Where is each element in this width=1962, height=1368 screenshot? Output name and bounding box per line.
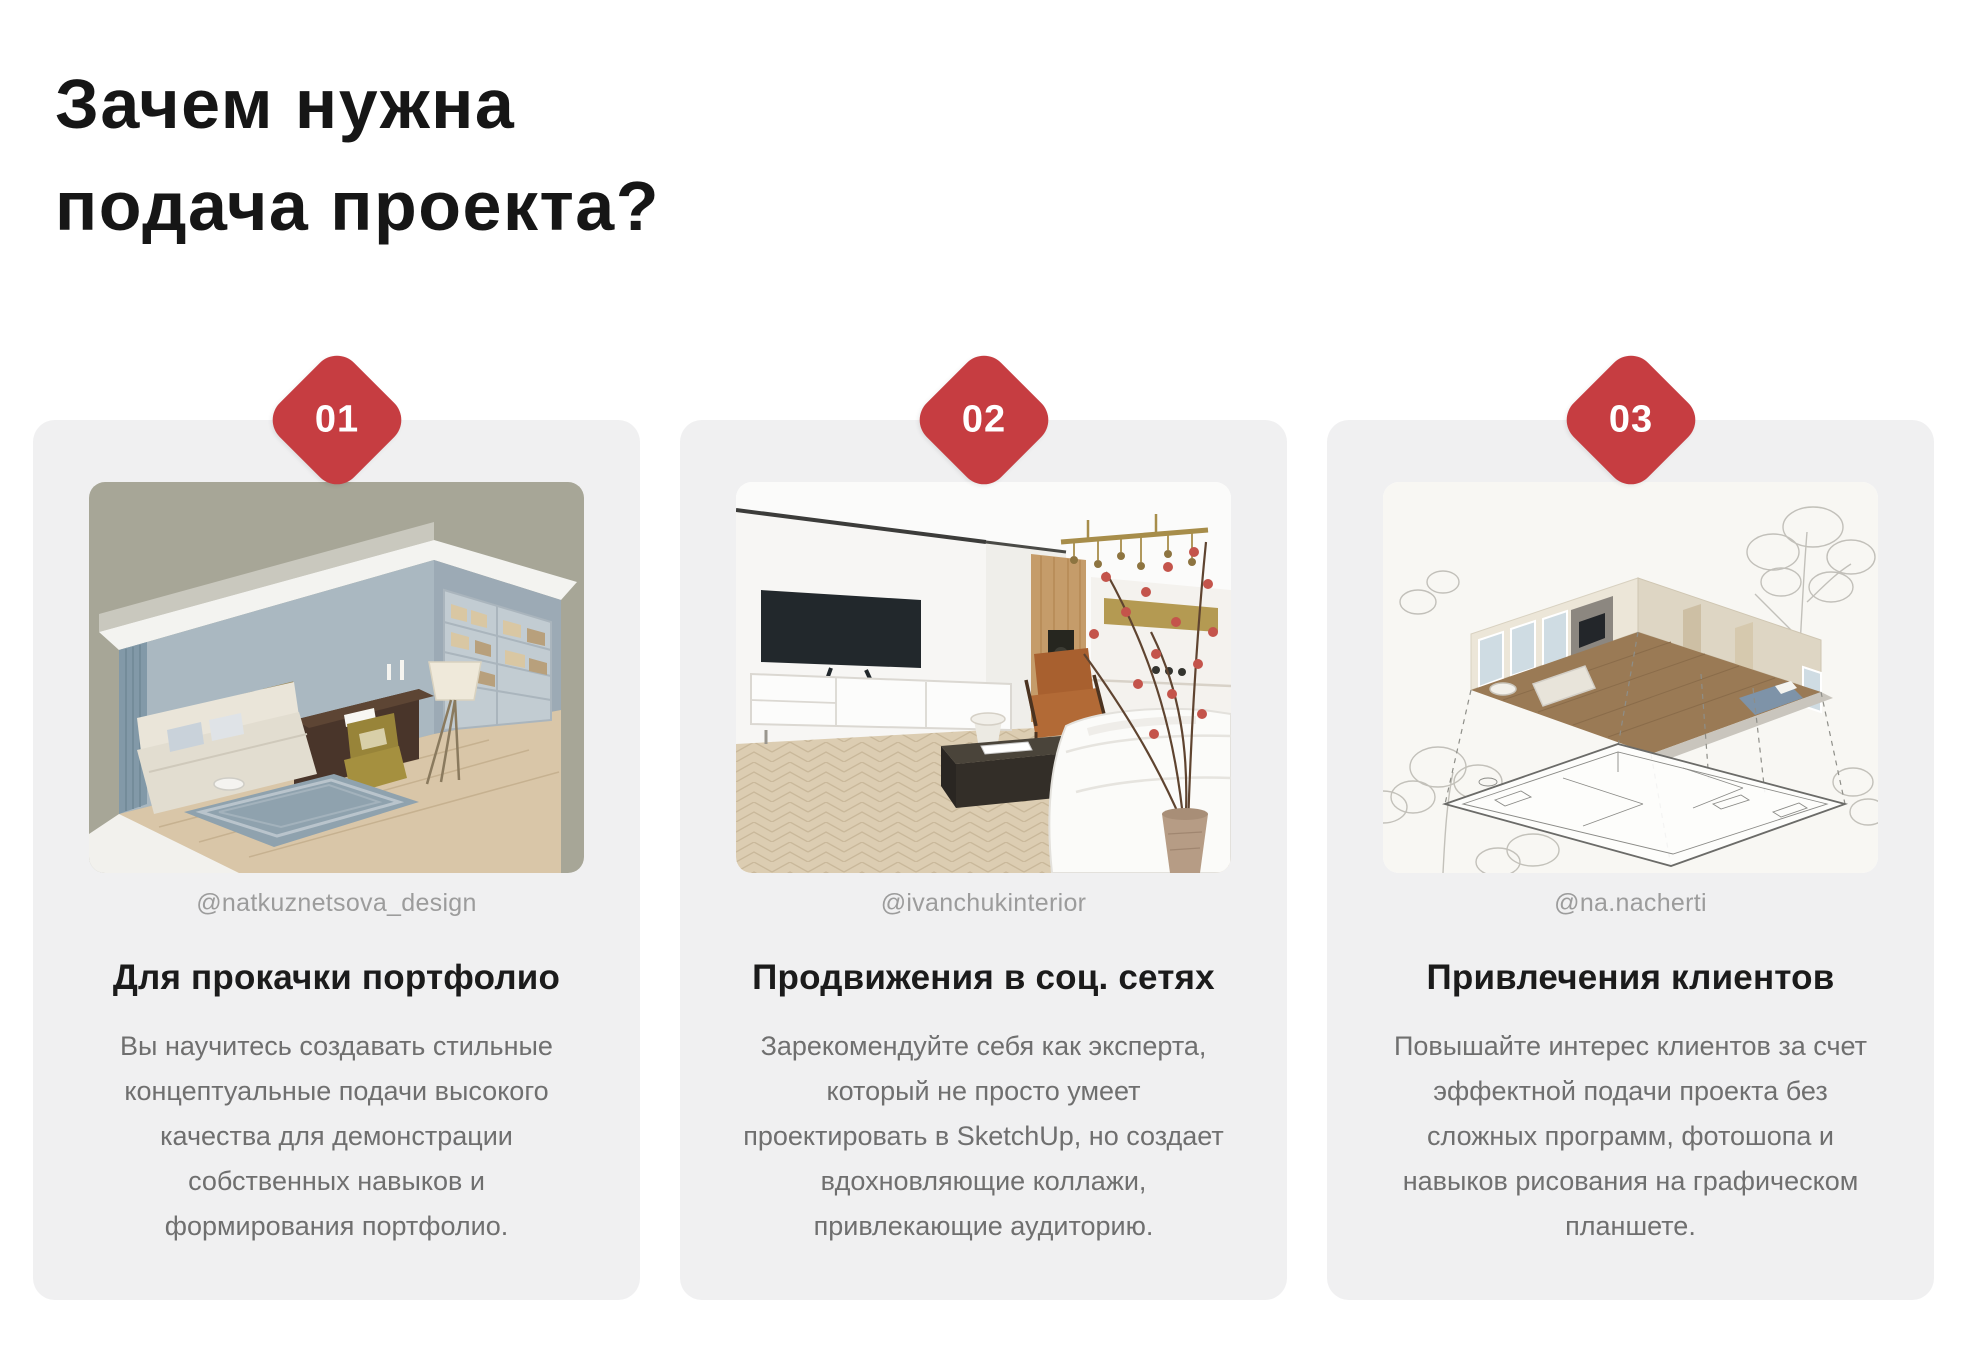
living-room-isometric-illustration xyxy=(89,482,584,873)
tv-room-perspective-illustration xyxy=(736,482,1231,873)
image-credit-handle: @natkuznetsova_design xyxy=(33,889,640,918)
badge-number: 03 xyxy=(1578,368,1683,473)
card-portfolio: 01 xyxy=(33,420,640,1300)
card-description: Вы научитесь создавать стильные концепту… xyxy=(91,1024,583,1249)
floorplan-axonometric-illustration xyxy=(1383,482,1878,873)
card-heading: Привлечения клиентов xyxy=(1327,958,1934,998)
page-title-line2: подача проекта? xyxy=(55,167,660,245)
page-title: Зачем нужна подача проекта? xyxy=(55,53,660,257)
badge-number: 01 xyxy=(284,368,389,473)
image-credit-handle: @na.nacherti xyxy=(1327,889,1934,918)
interior-render-image-floorplan xyxy=(1383,482,1878,873)
number-badge-diamond: 01 xyxy=(262,346,410,494)
number-badge-diamond: 02 xyxy=(909,346,1057,494)
page-title-line1: Зачем нужна xyxy=(55,65,515,143)
interior-render-image-living-room xyxy=(89,482,584,873)
card-description: Повышайте интерес клиентов за счет эффек… xyxy=(1385,1024,1877,1249)
card-description: Зарекомендуйте себя как эксперта, которы… xyxy=(738,1024,1230,1249)
card-social-media: 02 xyxy=(680,420,1287,1300)
image-credit-handle: @ivanchukinterior xyxy=(680,889,1287,918)
card-clients: 03 xyxy=(1327,420,1934,1300)
card-heading: Для прокачки портфолио xyxy=(33,958,640,998)
interior-render-image-tv-room xyxy=(736,482,1231,873)
badge-number: 02 xyxy=(931,368,1036,473)
benefit-cards-row: 01 xyxy=(33,420,1934,1300)
number-badge-diamond: 03 xyxy=(1556,346,1704,494)
card-heading: Продвижения в соц. сетях xyxy=(680,958,1287,998)
